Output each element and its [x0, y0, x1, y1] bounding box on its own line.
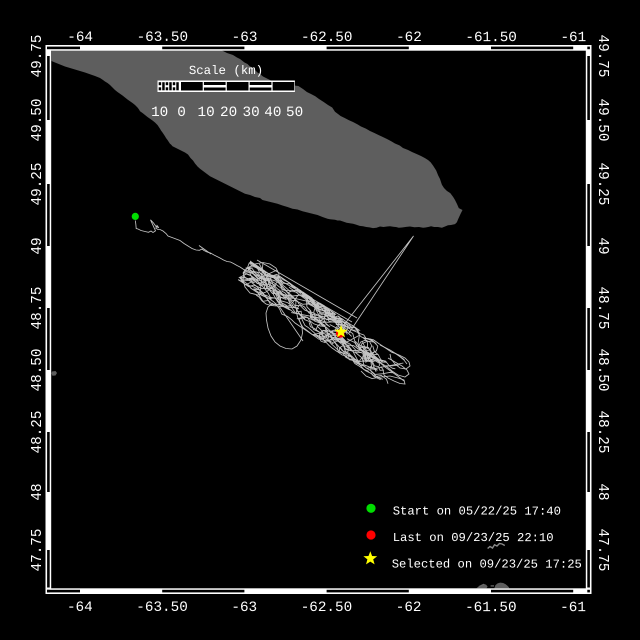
svg-text:-61.50: -61.50	[465, 600, 516, 616]
svg-text:-63.50: -63.50	[136, 600, 187, 616]
svg-text:48.50: 48.50	[594, 349, 610, 392]
svg-text:48.25: 48.25	[30, 411, 46, 454]
svg-text:0: 0	[177, 105, 186, 121]
svg-text:-61.50: -61.50	[465, 30, 516, 46]
svg-text:49: 49	[594, 237, 610, 254]
svg-text:49.50: 49.50	[30, 99, 46, 142]
svg-text:40: 40	[264, 105, 281, 121]
svg-text:-62: -62	[396, 600, 422, 616]
svg-text:47.75: 47.75	[594, 529, 610, 572]
svg-text:-61: -61	[560, 30, 586, 46]
svg-text:Scale (km): Scale (km)	[189, 64, 263, 78]
svg-text:Selected on 09/23/25 17:25: Selected on 09/23/25 17:25	[392, 558, 582, 572]
svg-text:-63: -63	[231, 600, 257, 616]
svg-text:20: 20	[220, 105, 237, 121]
svg-text:Start on 05/22/25 17:40: Start on 05/22/25 17:40	[393, 505, 561, 519]
svg-text:49.25: 49.25	[30, 163, 46, 206]
svg-text:48.75: 48.75	[594, 287, 610, 330]
svg-text:10: 10	[151, 105, 168, 121]
svg-text:49.75: 49.75	[30, 35, 46, 78]
svg-text:49.50: 49.50	[594, 99, 610, 142]
svg-text:48.50: 48.50	[30, 349, 46, 392]
svg-text:47.75: 47.75	[30, 529, 46, 572]
svg-text:-63.50: -63.50	[137, 30, 188, 46]
svg-text:49: 49	[30, 237, 46, 254]
svg-text:-61: -61	[560, 600, 586, 616]
svg-text:48: 48	[30, 483, 46, 500]
svg-text:48: 48	[594, 483, 610, 500]
svg-text:Last on 09/23/25 22:10: Last on 09/23/25 22:10	[393, 531, 554, 545]
svg-text:49.75: 49.75	[594, 35, 610, 78]
svg-text:30: 30	[243, 105, 260, 121]
svg-text:-62.50: -62.50	[301, 600, 352, 616]
svg-text:48.75: 48.75	[30, 287, 46, 330]
svg-text:-62.50: -62.50	[301, 30, 352, 46]
svg-text:48.25: 48.25	[594, 411, 610, 454]
svg-text:-62: -62	[396, 30, 422, 46]
svg-text:-64: -64	[67, 600, 93, 616]
svg-text:50: 50	[286, 105, 303, 121]
svg-text:10: 10	[198, 105, 215, 121]
svg-text:49.25: 49.25	[594, 163, 610, 206]
svg-text:-63: -63	[232, 30, 258, 46]
svg-text:-64: -64	[67, 30, 93, 46]
